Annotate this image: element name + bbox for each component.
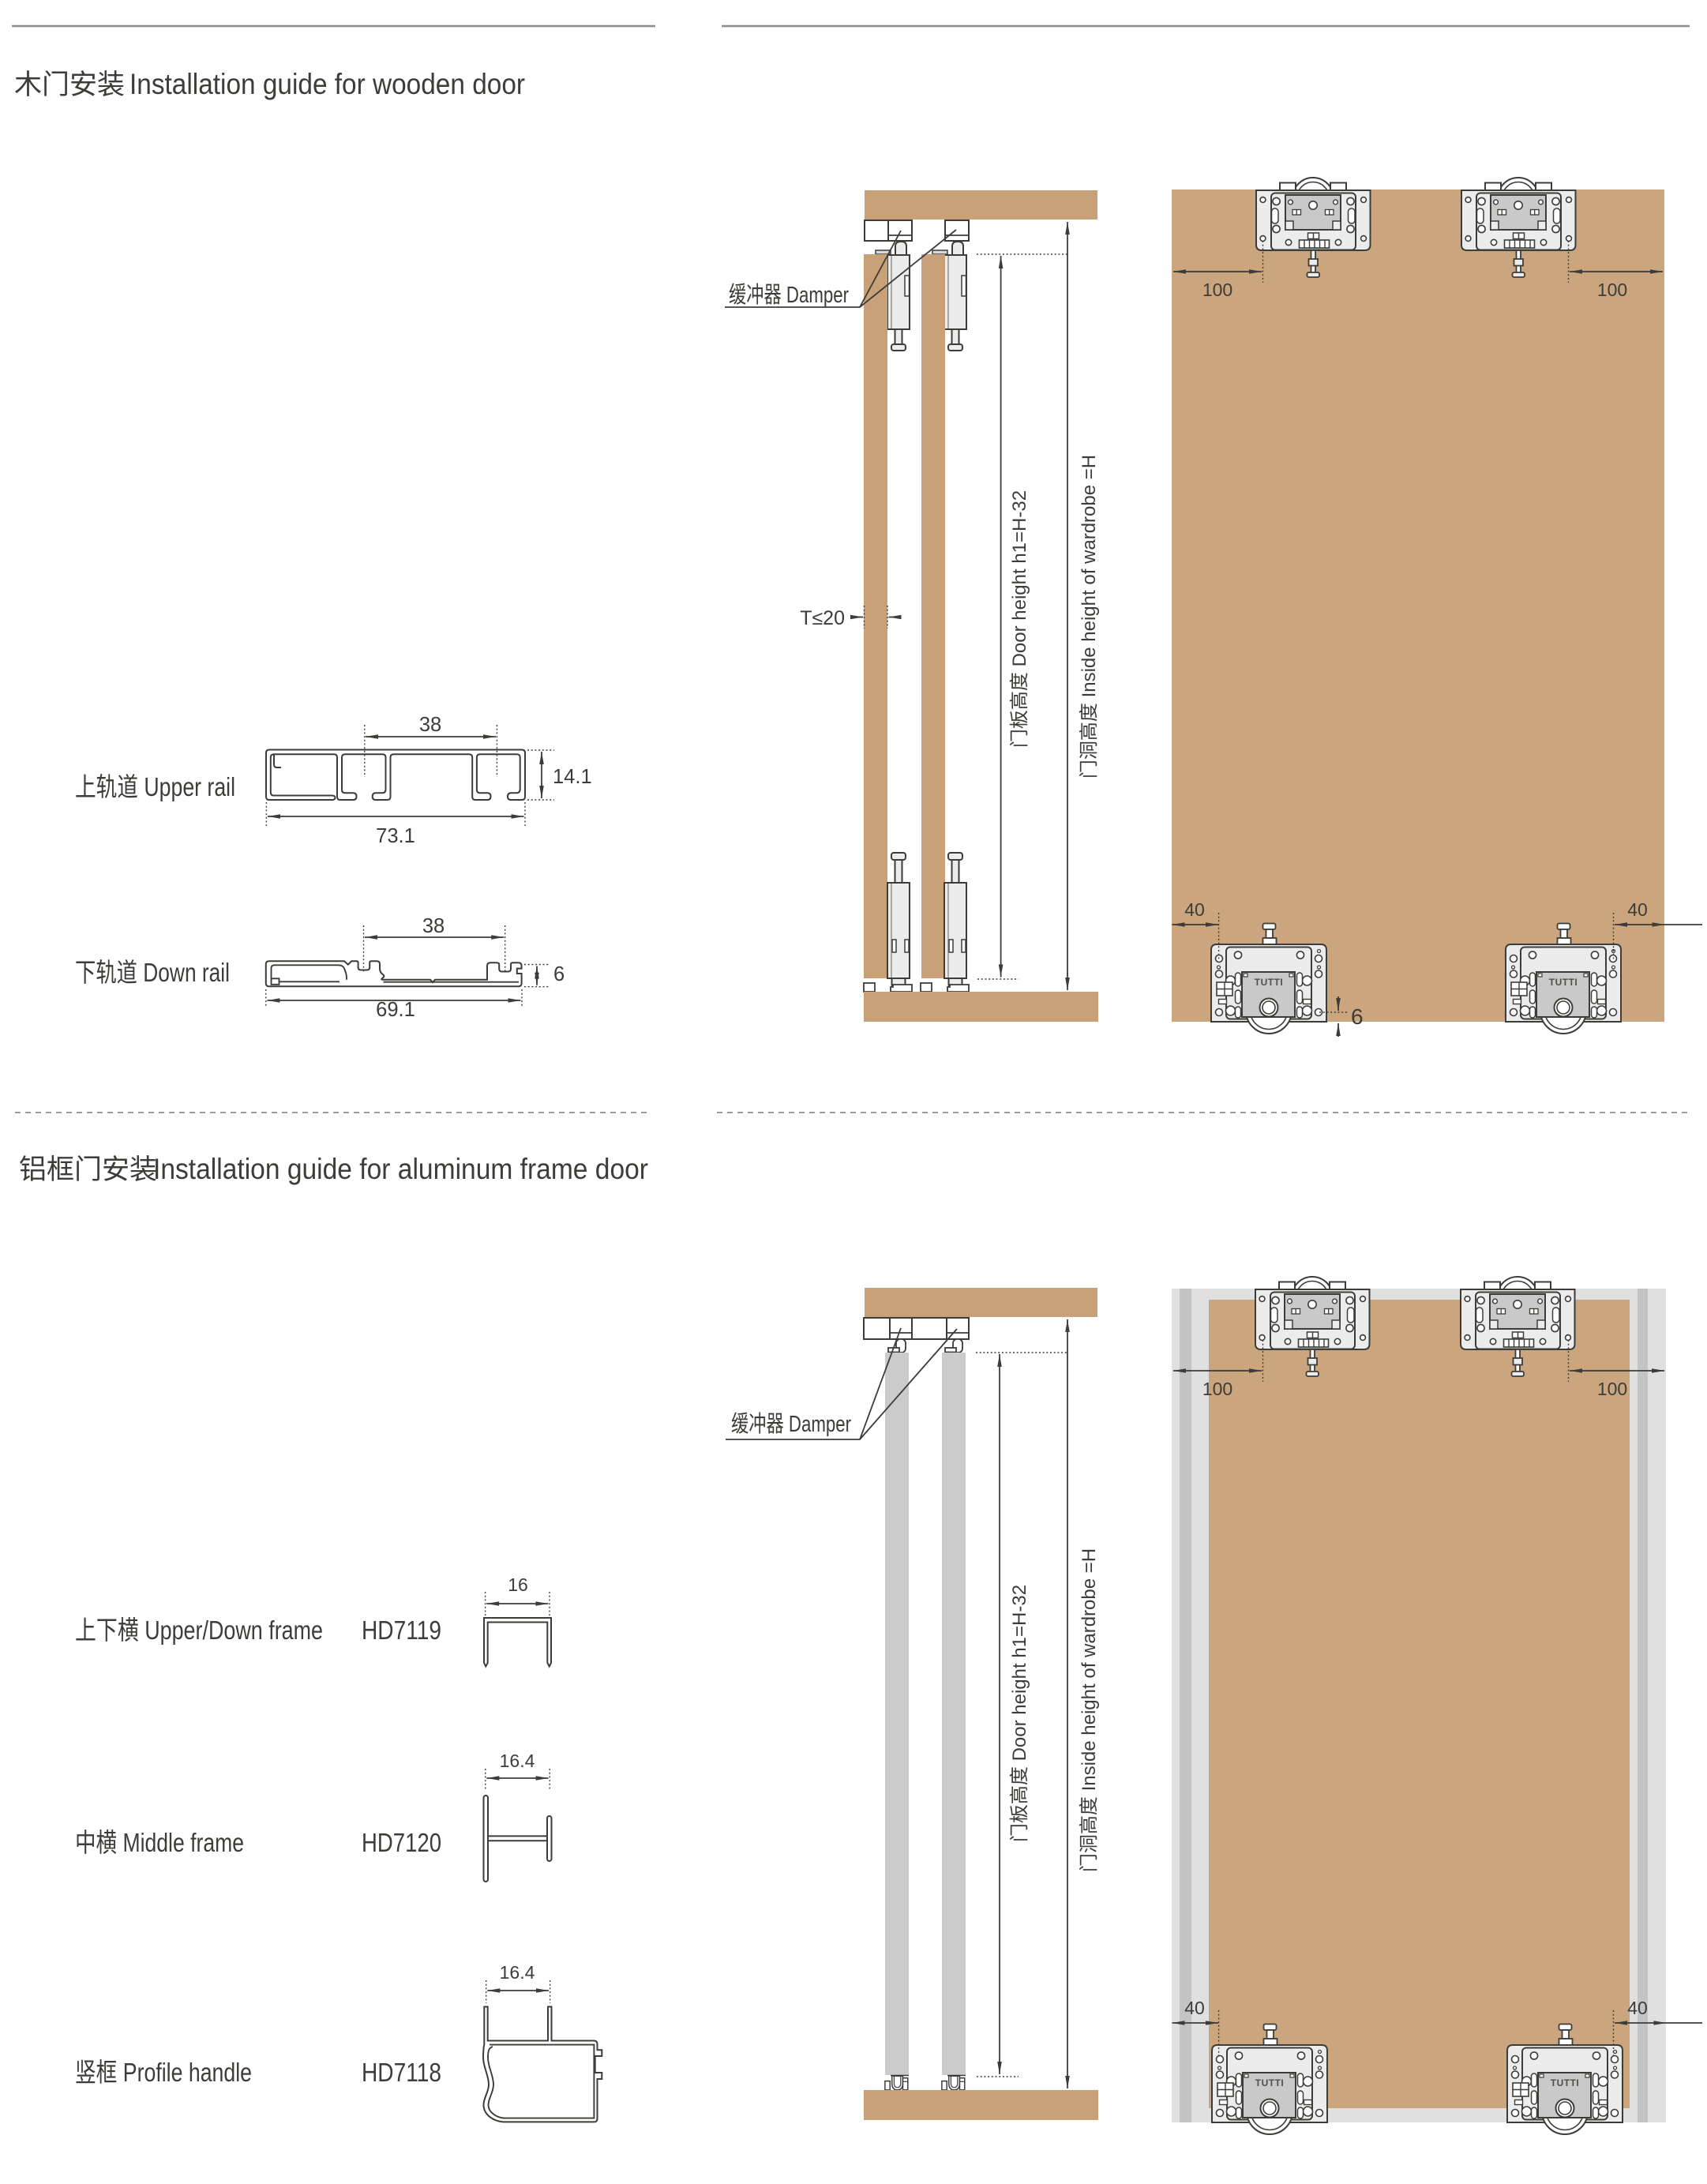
svg-text:门洞高度 Inside height of wardrobe: 门洞高度 Inside height of wardrobe =H: [1079, 1548, 1100, 1872]
svg-text:竖框 Profile handle: 竖框 Profile handle: [75, 2058, 252, 2087]
svg-text:上下横 Upper/Down frame: 上下横 Upper/Down frame: [75, 1615, 323, 1645]
svg-text:40: 40: [1627, 1998, 1648, 2018]
svg-text:38: 38: [419, 714, 441, 736]
svg-text:HD7120: HD7120: [362, 1828, 441, 1857]
svg-text:门洞高度 Inside height of wardrobe: 门洞高度 Inside height of wardrobe =H: [1079, 455, 1100, 779]
svg-text:73.1: 73.1: [376, 825, 415, 847]
svg-text:38: 38: [422, 915, 445, 937]
svg-text:14.1: 14.1: [553, 766, 592, 788]
svg-text:木门安装: 木门安装: [14, 69, 125, 100]
svg-text:16.4: 16.4: [500, 1751, 535, 1771]
svg-text:HD7119: HD7119: [362, 1615, 441, 1645]
svg-text:Installation guide for aluminu: Installation guide for aluminum frame do…: [153, 1153, 648, 1185]
svg-text:6: 6: [553, 963, 565, 985]
svg-text:40: 40: [1184, 899, 1205, 920]
svg-text:上轨道 Upper rail: 上轨道 Upper rail: [75, 772, 235, 801]
svg-text:100: 100: [1202, 1379, 1232, 1399]
svg-text:100: 100: [1202, 280, 1232, 300]
svg-text:100: 100: [1597, 280, 1627, 300]
svg-text:Installation guide for wooden: Installation guide for wooden door: [129, 68, 525, 100]
svg-text:门板高度 Door height h1=H-32: 门板高度 Door height h1=H-32: [1009, 1585, 1030, 1842]
svg-text:下轨道 Down rail: 下轨道 Down rail: [75, 958, 230, 987]
svg-text:100: 100: [1597, 1379, 1627, 1399]
svg-text:6: 6: [1351, 1004, 1364, 1029]
svg-text:16.4: 16.4: [500, 1962, 535, 1983]
svg-text:69.1: 69.1: [376, 999, 415, 1021]
svg-text:门板高度 Door height h1=H-32: 门板高度 Door height h1=H-32: [1009, 490, 1030, 748]
svg-text:T≤20: T≤20: [800, 607, 845, 629]
svg-text:16: 16: [508, 1574, 528, 1595]
svg-text:40: 40: [1627, 899, 1648, 920]
svg-text:中横 Middle frame: 中横 Middle frame: [75, 1828, 244, 1857]
svg-text:40: 40: [1184, 1998, 1205, 2018]
svg-text:HD7118: HD7118: [362, 2058, 441, 2087]
svg-text:铝框门安装: 铝框门安装: [19, 1154, 157, 1185]
svg-text:缓冲器 Damper: 缓冲器 Damper: [729, 282, 849, 308]
svg-text:缓冲器 Damper: 缓冲器 Damper: [731, 1411, 851, 1437]
